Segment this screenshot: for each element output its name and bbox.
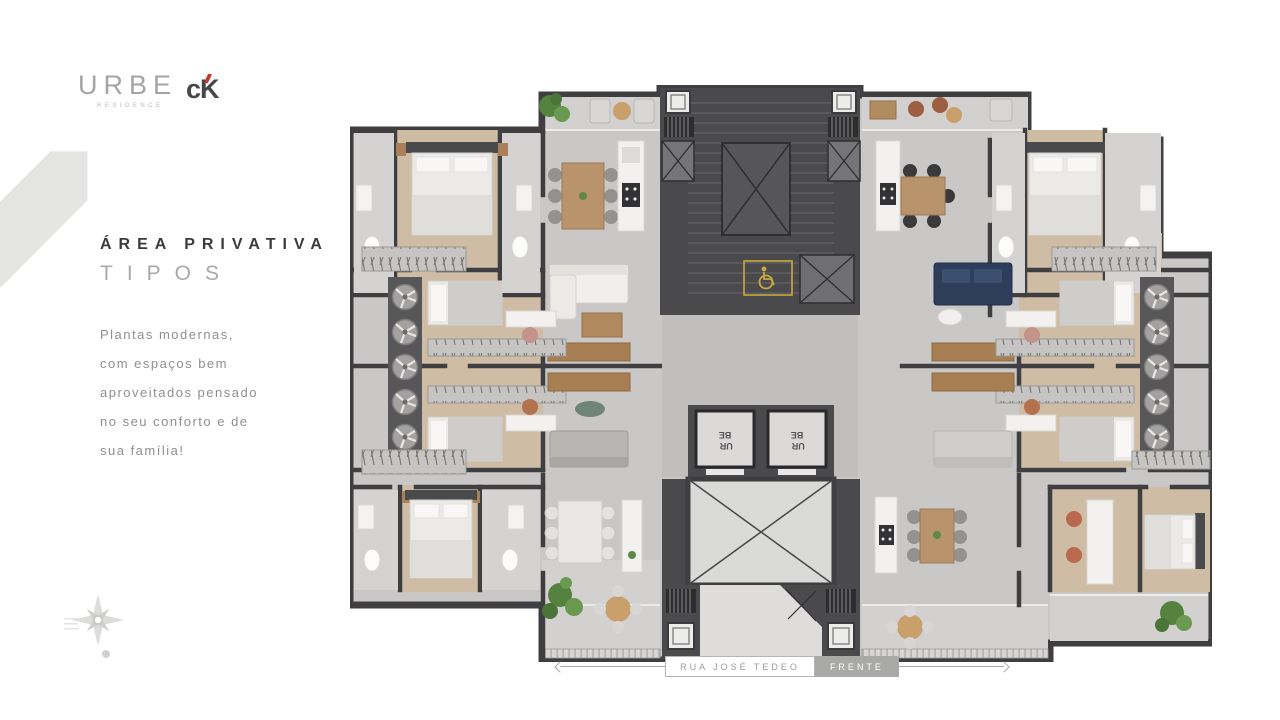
- wardrobe: [362, 247, 466, 271]
- arrow-left-icon: [554, 661, 565, 672]
- elevator-bank: UR BE UR BE: [688, 405, 834, 477]
- double-bed: [402, 490, 480, 578]
- wardrobe: [428, 339, 566, 356]
- dining-table: [545, 501, 615, 563]
- desk: [1006, 311, 1056, 327]
- elevator-cab-logo: UR BE: [717, 430, 733, 451]
- desk: [506, 311, 556, 327]
- coffee-table: [582, 313, 622, 337]
- single-bed: [1060, 417, 1134, 461]
- wardrobe: [362, 450, 466, 474]
- wardrobe: [428, 386, 566, 403]
- street-name-label: RUA JOSÉ TEDEO: [665, 656, 815, 677]
- arrow-right-icon: [998, 661, 1009, 672]
- kitchen-counter: [618, 141, 644, 231]
- sofa: [550, 431, 628, 467]
- wardrobe: [996, 386, 1134, 403]
- desk-chair: [1024, 399, 1040, 415]
- double-bed: [396, 142, 508, 235]
- single-bed: [428, 281, 502, 325]
- elevator-cab-logo: UR BE: [789, 430, 805, 451]
- desk-chair: [522, 399, 538, 415]
- description-text: Plantas modernas, com espaços bem aprove…: [100, 320, 258, 465]
- tv-console: [932, 373, 1014, 391]
- urbe-logo: URBE: [78, 70, 177, 101]
- desk: [506, 415, 556, 431]
- double-bed: [1027, 142, 1105, 235]
- double-bed: [1145, 513, 1205, 569]
- kitchen-counter: [876, 141, 900, 231]
- diagonal-ribbon: [0, 150, 95, 290]
- sofa: [934, 431, 1012, 467]
- desk-chair: [1024, 327, 1040, 343]
- wardrobe: [1052, 247, 1156, 271]
- ck-logo: cK: [186, 74, 219, 105]
- scale-line: [560, 666, 665, 667]
- single-bed: [1060, 281, 1134, 325]
- dining-table: [548, 163, 618, 229]
- kitchen-island: [622, 500, 642, 572]
- desk-chair: [522, 327, 538, 343]
- page-subtitle: TIPOS: [100, 262, 233, 286]
- front-label: FRENTE: [815, 656, 899, 677]
- coffee-table: [575, 401, 605, 417]
- street-scale-bar: RUA JOSÉ TEDEO FRENTE: [556, 656, 1008, 677]
- page-title: ÁREA PRIVATIVA: [100, 236, 329, 254]
- floorplan: UR BE UR BE: [350, 85, 1212, 662]
- desk: [1006, 415, 1056, 431]
- tv-console: [548, 373, 630, 391]
- wardrobe: [1132, 451, 1210, 469]
- page: URBE RESIDENCE cK ÁREA PRIVATIVA TIPOS P…: [0, 0, 1280, 720]
- central-core: UR BE UR BE: [660, 88, 860, 659]
- compass-rose-icon: [58, 588, 138, 668]
- wardrobe: [996, 339, 1134, 356]
- dining-table: [907, 509, 967, 563]
- scale-line: [899, 666, 1004, 667]
- kitchen-counter: [875, 497, 897, 573]
- urbe-logo-subtext: RESIDENCE: [97, 103, 164, 109]
